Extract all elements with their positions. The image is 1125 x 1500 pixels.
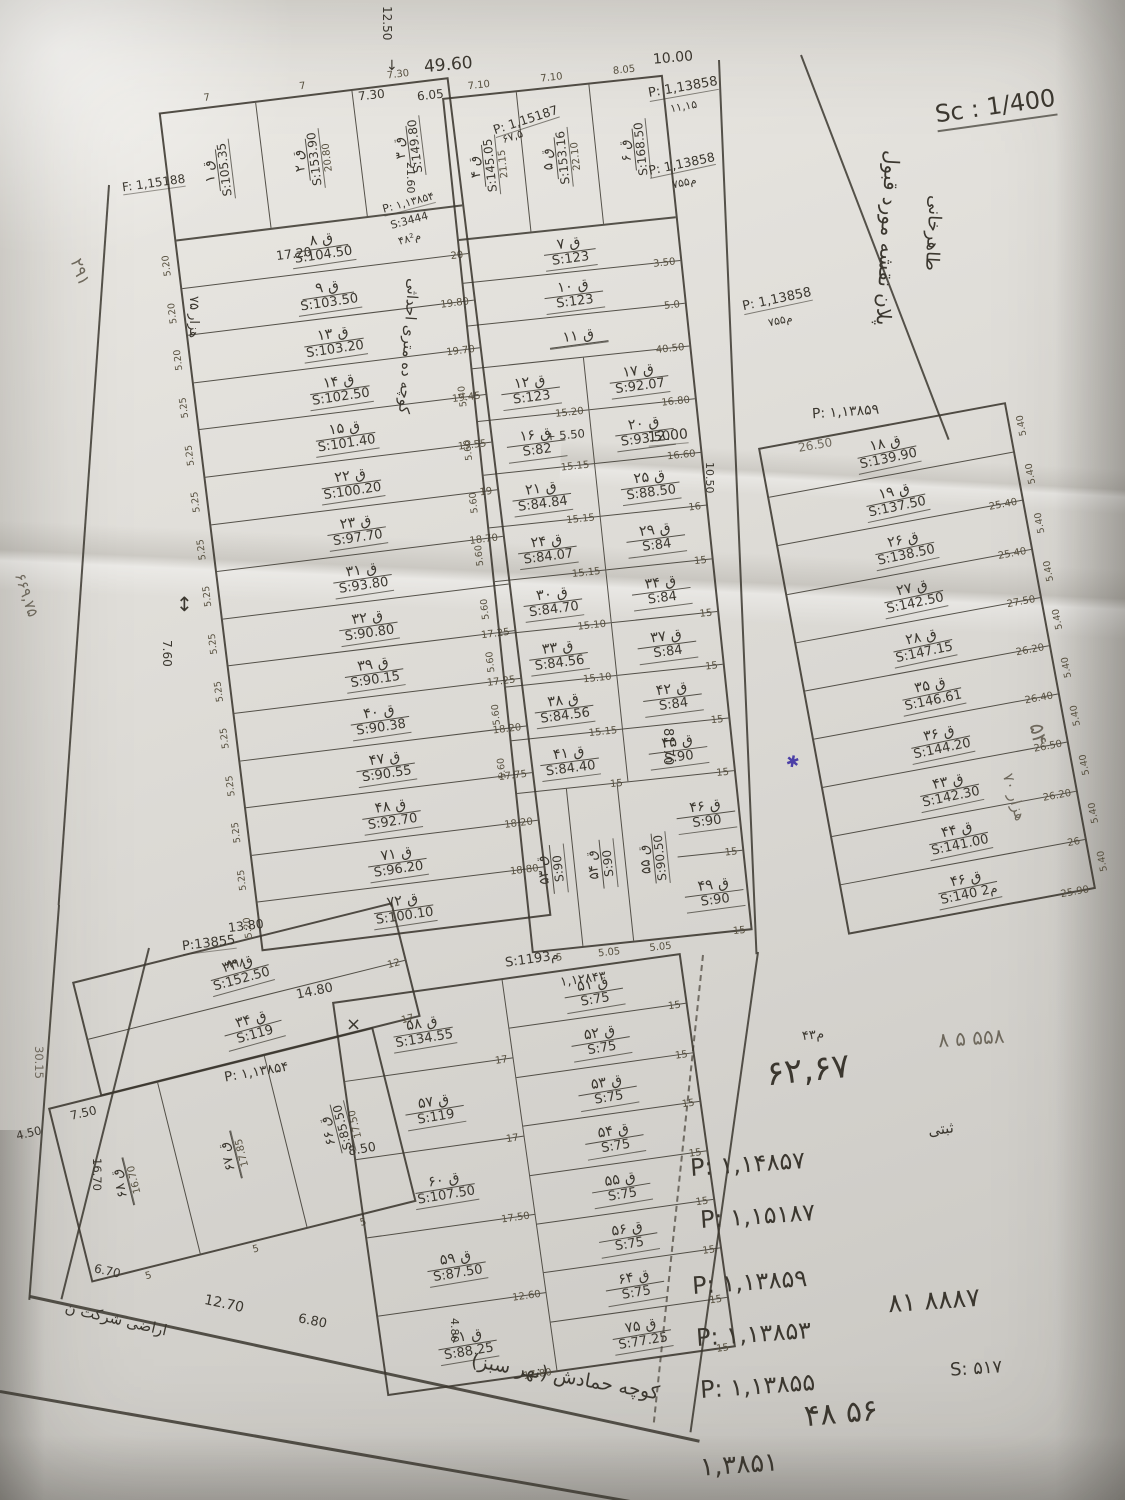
- ledger-p15187: P: ۱,۱۵۱۸۷: [699, 1198, 816, 1234]
- plot-width-dim: 5.60: [484, 651, 497, 673]
- plot-label: ق ۴۲ S:84: [641, 675, 704, 717]
- plot-label: ق ۳۵ S:146.61: [897, 669, 967, 716]
- dim-12-00: 12.00: [647, 426, 688, 446]
- plot-label: ق ۱۰ S:123: [542, 272, 605, 314]
- plot-label: ق ۲۷ S:142.50: [879, 572, 949, 619]
- plot-width-dim: 5.60: [462, 439, 475, 461]
- parcel-ref-p13858-c-sub: ۷۵۵م: [767, 312, 794, 330]
- ledger-s517: S: ۵۱۷: [949, 1356, 1003, 1381]
- plot-row: ق ۳۸ S:84.56 15.15 5.60: [506, 675, 622, 740]
- plot-width-dim: 5.60: [490, 704, 503, 726]
- plot-label: ق ۱۲ S:123: [499, 368, 562, 410]
- dim-12-70: 12.70: [203, 1292, 246, 1316]
- plot-label: ق ۴۸ S:92.70: [360, 792, 424, 835]
- plot-label: ق ۱۳ S:103.20: [300, 320, 369, 364]
- plot-width-dim: 5.05: [598, 946, 621, 959]
- plot-frontage-dim: 15: [702, 1244, 716, 1257]
- plot-width-dim: 5.25: [230, 822, 243, 844]
- plot-label: ق ۵۴ S:90: [581, 838, 619, 890]
- plot-label: ق ۱۴ S:102.50: [305, 367, 374, 411]
- plot-frontage-dim: 16: [688, 501, 702, 513]
- plot-width-dim: 5.40: [1014, 414, 1029, 437]
- plot-label: ق ۴۴ S:141.00: [923, 814, 993, 861]
- plot-frontage-dim: 15: [667, 1000, 681, 1013]
- middle-block-two-columns: ق ۱۲ S:123 15.20 5.40 ق ۱۶ S:82 15.15 5.: [472, 346, 733, 793]
- bottom-middle-columns: ق ۵۸ S:134.55 17 ق ۵۷ S:119 17: [334, 955, 733, 1394]
- plot-width-dim: 7.10: [540, 71, 563, 84]
- plot-cell: ق ۱ S:105.35 7: [161, 103, 271, 240]
- plot-label: ق ۳۴ S:84: [630, 569, 693, 611]
- plot-width-dim: 5.40: [1059, 656, 1074, 679]
- plot-label: ق ۲۹ S:84: [624, 516, 687, 558]
- middle-block-full-rows: ق ۷ S:123 3.50 ق ۱۰ S:123 5.0 ق ۱۱: [459, 218, 689, 368]
- margin-number-669-75: ۶۶۹,۷۵: [11, 571, 42, 619]
- plot-label: ق ۳۷ S:84: [636, 622, 699, 664]
- plot-label: ق ۵۴ S:75: [583, 1116, 647, 1160]
- plot-frontage-dim: 26: [1067, 836, 1082, 849]
- plot-width-dim: 5.25: [218, 727, 231, 749]
- plot-label: ق ۴۹ S:90: [682, 872, 745, 914]
- dim-4-80: 4.80: [448, 1318, 461, 1368]
- plot-number: ق ۱۱: [548, 324, 609, 349]
- plot-row: ق ۴۵ S:90 15: [623, 717, 734, 781]
- arrow-down-icon: ↓: [386, 58, 398, 74]
- plot-width-dim: 5.60: [473, 545, 486, 567]
- plot-label: ق ۲۴ S:84.07: [516, 528, 579, 570]
- plot-label: ق ۷۵ S:77.25: [610, 1312, 674, 1356]
- plot-frontage-dim: 15: [681, 1098, 695, 1111]
- plot-frontage-dim: 15: [705, 661, 719, 673]
- plot-label: ق ۴۳ S:142.30: [914, 766, 984, 813]
- plot-label: ق ۵۷ S:119: [402, 1087, 466, 1131]
- dim-30-15: 30.15: [32, 1046, 46, 1116]
- plot-width-dim: 7: [203, 92, 211, 104]
- plot-width-dim: 5.40: [1068, 705, 1083, 728]
- plot-width-dim: 5.60: [495, 757, 508, 779]
- plot-row: ق ۲۴ S:84.07 15.15 5.60: [489, 516, 605, 581]
- price-note-75-hezar: ۷۵ هزار: [186, 296, 201, 411]
- plot-label: ق ۳۲ S:90.80: [337, 603, 401, 646]
- plot-label: ق ۶ S:168.50: [613, 119, 652, 182]
- purple-star-mark: ✱: [784, 751, 801, 772]
- plot-row: ق ۳۰ S:84.70 15.10 5.60: [495, 569, 611, 634]
- ledger-big-62-67: ۶۲,۶۷: [764, 1046, 852, 1095]
- x-mark: ×: [346, 1014, 361, 1035]
- plot-label: ق ۲۲ S:100.20: [317, 461, 386, 505]
- plot-label: ق ۲۳ S:97.70: [325, 509, 389, 552]
- plot-label: ق ۴۶ S:90: [674, 793, 737, 835]
- plot-label: ق ۷ S:123: [542, 230, 598, 271]
- plot-row: ق ۲۹ S:84 15: [601, 505, 712, 569]
- plot-frontage-dim: 17: [505, 1132, 519, 1145]
- plot-label: ق ۹ S:103.50: [294, 272, 363, 316]
- plot-width-dim: 5.40: [1095, 850, 1110, 873]
- plot-frontage-dim: 15: [716, 767, 730, 779]
- plot-label: ق ۳۳ S:84.56: [527, 634, 590, 676]
- plot-label: ق ۱۹ S:137.50: [861, 475, 931, 522]
- plot-width-dim: 5.25: [207, 633, 220, 655]
- plot-width-dim: 5: [251, 1243, 260, 1255]
- right-block-rows: ق ۱۸ S:139.90 5.40 ق ۱۹ S:137.50 25.40 5…: [760, 404, 1093, 932]
- plot-label: ق ۴۶ S:140 م2: [932, 862, 1002, 909]
- plot-frontage-dim: 15: [693, 554, 707, 566]
- plot-width-dim: 5.20: [172, 349, 185, 371]
- dim-7-60: 7.60: [160, 640, 174, 695]
- dim-4-50: 4.50: [15, 1123, 43, 1142]
- plot-width-dim: 7.10: [467, 79, 490, 92]
- dim-6-80: 6.80: [297, 1311, 328, 1331]
- plot-frontage-dim: 15: [724, 846, 738, 858]
- dim-49-60: 49.60: [423, 53, 473, 77]
- margin-number-291: ۲۹۱: [66, 256, 94, 289]
- plot-frontage-dim: 15: [699, 607, 713, 619]
- plot-width-dim: 5.25: [212, 680, 225, 702]
- plot-label: ق ۳۸ S:84.56: [532, 687, 595, 729]
- plot-frontage-dim: 15: [610, 778, 624, 790]
- middle-block-bottom-area: ق ۵۳ S:90 5 ق ۵۴ S:90 5.05: [517, 770, 750, 951]
- plot-width-dim: 5.40: [1041, 559, 1056, 582]
- middle-block-top-plots: ق ۴ S:145.05 21.15 7.10 ق ۵ S:153.16 22.…: [444, 77, 676, 241]
- plot-frontage-dim: 15: [710, 714, 724, 726]
- bottom-middle-block: ق ۵۸ S:134.55 17 ق ۵۷ S:119 17: [332, 953, 736, 1396]
- plot-width-dim: 5: [144, 1270, 153, 1282]
- plot-label: ق ۱۵ S:101.40: [311, 414, 380, 458]
- parcel-ref-p13858-c: P: 1,13858: [741, 285, 813, 315]
- ledger-big-62-67-sub: ۴۳م: [801, 1027, 824, 1044]
- plot-width-dim: 5.25: [236, 869, 249, 891]
- plot-width-dim: 5.25: [224, 775, 237, 797]
- boundary-line-outer-west-upper: [58, 185, 110, 905]
- plot-label: ق ۳۴ S:119: [220, 1003, 287, 1052]
- plot-label: ق ۳۹ S:90.15: [342, 651, 406, 694]
- plot-label: ق ۲۶ S:138.50: [870, 524, 940, 571]
- plot-label: ق ۵۶ S:75: [596, 1214, 660, 1258]
- plot-label: ق ۱۷ S:92.07: [608, 357, 671, 399]
- arrow-updown-icon: ↕: [176, 592, 193, 616]
- ledger-p13855: P: ۱,۱۳۸۵۵: [699, 1368, 816, 1404]
- plot-label: ق ۱ S:105.35: [196, 140, 236, 203]
- plot-label: ق ۳۶ S:144.20: [905, 717, 975, 764]
- plot-label: ق ۶۷ 17.85: [211, 1127, 253, 1182]
- plot-label: ق ۷۱ S:96.20: [366, 840, 430, 883]
- plot-label: ق ۴۷ S:90.55: [354, 745, 418, 788]
- plot-row: ق ۴۹ S:90 15: [677, 849, 750, 935]
- plot-label: ق ۲۸ S:147.15: [888, 621, 958, 668]
- plot-label: ق ۵۳ S:90: [531, 844, 569, 896]
- plot-frontage-dim: 15: [674, 1049, 688, 1062]
- dim-16-70: 16.70: [90, 1158, 104, 1218]
- dim-6-05: 6.05: [416, 87, 444, 104]
- plot-frontage-dim: 17: [494, 1054, 508, 1067]
- plot-label: ق ۵ S:153.16 22.10: [535, 126, 585, 190]
- plot-label: ق ۲۵ S:88.50: [619, 463, 682, 505]
- plot-row: ق ۱۲ S:123 15.20 5.40: [473, 358, 589, 422]
- plot-frontage-dim: 5.0: [664, 299, 681, 312]
- plot-label: ق ۶۴ S:75: [603, 1263, 667, 1307]
- plot-label: ق ۵۹ S:87.50: [424, 1243, 488, 1287]
- plot-frontage-dim: 25.90: [1060, 884, 1090, 900]
- dim-10-00: 10.00: [652, 48, 693, 67]
- ledger-number-13851: ۱,۳۸۵۱: [699, 1447, 779, 1482]
- ledger-number-8887: ۸۱ ۸۸۸۷: [887, 1283, 981, 1319]
- plot-label: ق ۳۳ S:152.50: [204, 946, 275, 997]
- plot-width-dim: 5.40: [1032, 511, 1047, 534]
- plot-label: ق ۵۵ S:90.50: [632, 832, 670, 887]
- plot-width-dim: 5.40: [1077, 753, 1092, 776]
- ledger-note-sabti: ثبتی: [927, 1118, 955, 1139]
- ledger-number-558: ۸ ۵ ۵۵۸: [937, 1024, 1005, 1053]
- plot-width-dim: 5.60: [467, 492, 480, 514]
- plot-label: ق ۴۰ S:90.38: [348, 698, 412, 741]
- plot-label: ق ۴۱ S:84.40: [538, 740, 601, 782]
- plot-width-dim: 5.25: [189, 491, 202, 513]
- plot-width-dim: 5.60: [479, 598, 492, 620]
- right-block: ق ۱۸ S:139.90 5.40 ق ۱۹ S:137.50 25.40 5…: [758, 402, 1096, 935]
- plot-width-dim: 5.25: [183, 444, 196, 466]
- plot-row: ق ۳۷ S:84 15: [612, 611, 723, 675]
- plot-frontage-dim: 15: [732, 925, 746, 937]
- plot-width-dim: 5.25: [195, 538, 208, 560]
- dim-10-50: 10.50: [703, 462, 716, 517]
- plot-row: ق ۲۱ S:84.84 15.15 5.60: [484, 463, 600, 528]
- plot-row: ق ۱۶ S:82 15.15 5.60: [478, 410, 594, 475]
- plot-width-dim: 5.40: [1086, 801, 1101, 824]
- parcel-ref-p13858-a-sub: ۱۱,۱۵: [669, 98, 698, 116]
- plot-cell: ق ۲ S:153.90 20.80 7: [255, 91, 366, 228]
- plot-label: ق ۶۰ S:107.50: [411, 1165, 480, 1210]
- area-note-s1193: S:1193م: [504, 948, 559, 970]
- plot-width-dim: 5.05: [649, 941, 672, 954]
- plot-width-dim: 5.40: [1050, 608, 1065, 631]
- plot-label: ق ۱۱: [548, 322, 610, 350]
- parcel-ref-p13858-b-sub: ۷۵۵م: [671, 174, 698, 192]
- plot-row: ق ۳۴ S:84 15: [606, 558, 717, 622]
- plot-label: ق ۴۵ S:90: [647, 729, 710, 771]
- plot-width-dim: 5.40: [456, 386, 469, 408]
- plot-width-dim: 5.20: [160, 255, 173, 277]
- plot-row: ق ۴۲ S:84 15: [617, 664, 728, 728]
- plot-label: ق ۳۱ S:93.80: [331, 556, 395, 599]
- plot-width-dim: 8.05: [612, 64, 635, 77]
- dim-7-30: 7.30: [357, 87, 385, 104]
- plot-label: ق ۲ S:153.90 20.80: [286, 127, 337, 192]
- plot-width-dim: 5.25: [201, 586, 214, 608]
- dim-81-70: 81.70: [660, 728, 675, 818]
- plot-row: ق ۳۳ S:84.56 15.10 5.60: [500, 622, 616, 687]
- plot-width-dim: 7: [299, 81, 307, 93]
- plot-width-dim: 5.20: [166, 302, 179, 324]
- plot-frontage-dim: 3.50: [653, 257, 676, 270]
- plot-label: ق ۳۰ S:84.70: [521, 581, 584, 623]
- plot-label: ق ۵۵ S:75: [589, 1165, 653, 1209]
- plot-label: ق ۶۸ 16.70: [104, 1154, 146, 1209]
- plot-row: ق ۴۶ S:90 15: [669, 771, 742, 856]
- plot-row: ق ۲۵ S:88.50 16: [595, 452, 706, 516]
- plot-label: ق ۵۲ S:75: [569, 1018, 633, 1062]
- plot-label: ق ۵۳ S:75: [576, 1067, 640, 1111]
- parcel-ref-p13855-sub: ۸۹۸: [225, 955, 246, 971]
- ledger-big-48-56: ۴۸ ۵۶: [803, 1393, 880, 1434]
- plot-row: ق ۱۷ S:92.07 16.80: [584, 347, 695, 410]
- scale-note: Sc : 1/400: [933, 84, 1057, 133]
- plot-row: ق ۴۱ S:84.40 15 5.60: [511, 728, 627, 793]
- dim-12-50: 12.50: [380, 6, 394, 62]
- scanned-cadastral-sketch: ق ۱ S:105.35 7 ق ۲ S:153.90 20.80 7: [0, 0, 1125, 1500]
- plot-width-dim: 5.40: [1023, 463, 1038, 486]
- plot-label: ق ۲۱ S:84.84: [510, 475, 573, 517]
- company-lands-label: اراضی شرکت ن: [63, 1299, 168, 1340]
- plot-label: ق ۵۸ S:134.55: [389, 1008, 458, 1053]
